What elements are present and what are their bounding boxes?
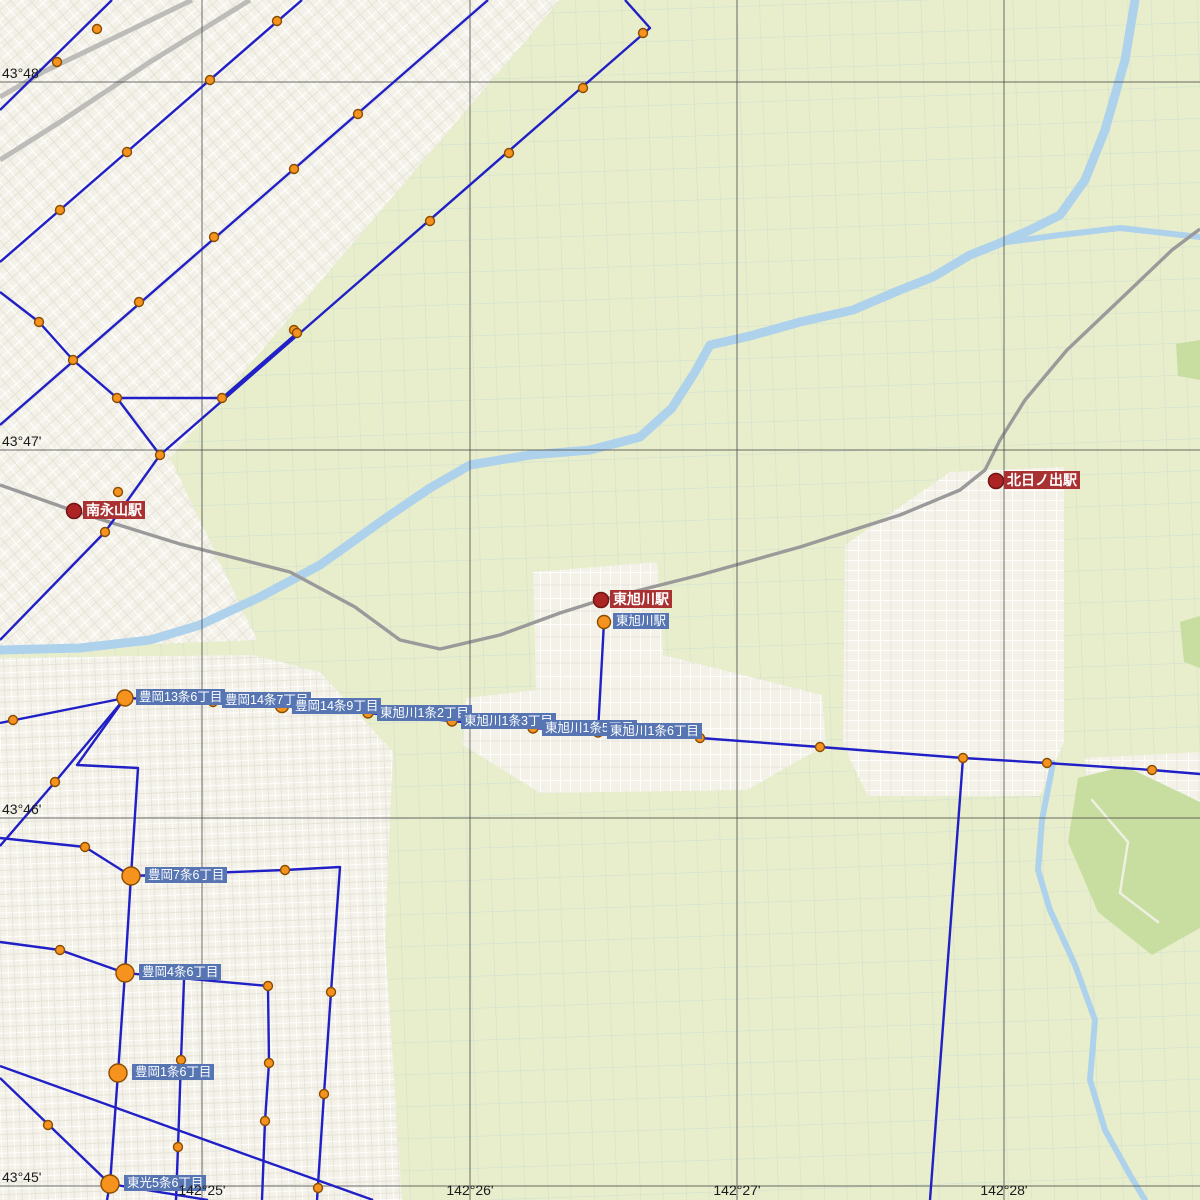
train-station-marker-kita-hinode[interactable]: [989, 474, 1004, 489]
bus-stop-marker[interactable]: [69, 356, 78, 365]
bus-stop-marker[interactable]: [816, 743, 825, 752]
bus-stop-marker[interactable]: [123, 148, 132, 157]
bus-stop-marker[interactable]: [210, 233, 219, 242]
bus-stop-marker[interactable]: [116, 964, 134, 982]
bus-stop-marker[interactable]: [1043, 759, 1052, 768]
bus-stop-marker[interactable]: [265, 1059, 274, 1068]
bus-stop-marker[interactable]: [44, 1121, 53, 1130]
bus-stop-marker[interactable]: [122, 867, 140, 885]
bus-stop-marker[interactable]: [101, 1175, 119, 1193]
bus-stop-marker[interactable]: [114, 488, 123, 497]
bus-stop-marker[interactable]: [314, 1184, 323, 1193]
station-label-kita-hinode[interactable]: 北日ノ出駅: [1004, 471, 1080, 489]
bus-stop-label[interactable]: 豊岡1条6丁目: [132, 1064, 214, 1080]
bus-stop-marker[interactable]: [320, 1090, 329, 1099]
bus-stop-label[interactable]: 東旭川1条2丁目: [377, 705, 472, 721]
bus-stop-marker[interactable]: [290, 165, 299, 174]
map-svg: [0, 0, 1200, 1200]
bus-stop-label[interactable]: 豊岡4条6丁目: [139, 964, 221, 980]
bus-stop-marker[interactable]: [56, 206, 65, 215]
bus-stop-marker[interactable]: [261, 1117, 270, 1126]
bus-stop-marker[interactable]: [1148, 766, 1157, 775]
bus-stop-marker[interactable]: [959, 754, 968, 763]
station-label-higashi-asahikawa[interactable]: 東旭川駅: [610, 590, 672, 608]
bus-stop-label[interactable]: 豊岡13条6丁目: [136, 689, 225, 705]
bus-stop-marker[interactable]: [117, 690, 133, 706]
bus-stop-marker[interactable]: [174, 1143, 183, 1152]
bus-stop-marker[interactable]: [505, 149, 514, 158]
bus-stop-marker[interactable]: [327, 988, 336, 997]
bus-stop-marker[interactable]: [56, 946, 65, 955]
bus-stop-marker[interactable]: [51, 778, 60, 787]
bus-stop-marker[interactable]: [81, 843, 90, 852]
bus-stop-label[interactable]: 東旭川1条6丁目: [607, 723, 702, 739]
bus-stop-marker[interactable]: [9, 716, 18, 725]
bus-stop-marker[interactable]: [109, 1064, 127, 1082]
bus-stop-label[interactable]: 豊岡14条9丁目: [292, 698, 381, 714]
station-label-minami-nagayama[interactable]: 南永山駅: [83, 501, 145, 519]
bus-stop-marker[interactable]: [53, 58, 62, 67]
bus-stop-label[interactable]: 豊岡7条6丁目: [145, 867, 227, 883]
bus-stop-marker[interactable]: [598, 616, 611, 629]
bus-stop-marker[interactable]: [354, 110, 363, 119]
bus-stop-marker[interactable]: [579, 84, 588, 93]
map-canvas[interactable]: 豊岡14条7丁目豊岡13条6丁目豊岡14条9丁目東旭川1条2丁目東旭川1条3丁目…: [0, 0, 1200, 1200]
bus-stop-marker[interactable]: [281, 866, 290, 875]
bus-stop-marker[interactable]: [206, 76, 215, 85]
bus-stop-marker[interactable]: [293, 329, 302, 338]
bus-stop-marker[interactable]: [101, 528, 110, 537]
bus-stop-marker[interactable]: [218, 394, 227, 403]
train-station-marker-higashi-asahikawa[interactable]: [594, 593, 609, 608]
forest-area: [1176, 340, 1200, 380]
bus-stop-marker[interactable]: [35, 318, 44, 327]
bus-stop-marker[interactable]: [156, 451, 165, 460]
urban-streets-southwest-town: [0, 655, 402, 1200]
bus-stop-marker[interactable]: [135, 298, 144, 307]
train-station-marker-minami-nagayama[interactable]: [67, 504, 82, 519]
bus-stop-marker[interactable]: [113, 394, 122, 403]
bus-stop-marker[interactable]: [273, 17, 282, 26]
bus-stop-marker[interactable]: [426, 217, 435, 226]
bus-stop-marker[interactable]: [264, 982, 273, 991]
bus-stop-label[interactable]: 東旭川駅: [613, 613, 669, 629]
bus-stop-label[interactable]: 東光5条6丁目: [124, 1175, 206, 1191]
bus-stop-marker[interactable]: [639, 29, 648, 38]
bus-stop-marker[interactable]: [93, 25, 102, 34]
